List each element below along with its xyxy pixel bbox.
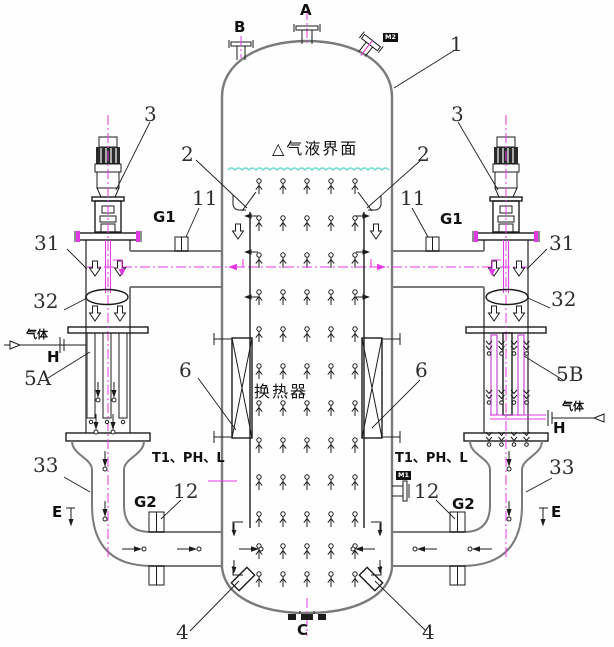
label-part-2-left: 2 [181,144,194,164]
label-nozzle-b: B [234,20,245,35]
label-part-4-left: 4 [176,622,189,642]
label-part-31-left: 31 [34,233,59,253]
label-part-1: 1 [450,34,463,54]
reactor-engineering-drawing: 1 2 2 3 3 4 4 5A 5B 6 6 11 11 12 12 31 3… [0,0,614,647]
label-nozzle-g1-left: G1 [153,210,176,225]
nozzle-m1 [392,481,409,501]
label-nozzle-g2-right: G2 [452,497,475,512]
nozzle-m2 [351,32,383,63]
label-nozzle-e-left: E [52,505,62,520]
left-circulation-assembly [66,115,263,591]
label-nozzle-a: A [300,3,312,18]
label-part-12-left: 12 [173,481,198,501]
annotation-gas-right: 气体 [562,401,584,412]
label-nozzle-g1-right: G1 [440,212,463,227]
annotation-instruments-right: T1、PH、L [395,452,468,465]
label-part-3-left: 3 [144,104,157,124]
label-part-33-right: 33 [549,457,574,477]
section-mark-e-left [66,508,75,527]
label-nozzle-m2: M2 [383,33,398,42]
label-part-2-right: 2 [417,144,430,164]
label-part-6-right: 6 [415,360,428,380]
annotation-instruments-left: T1、PH、L [152,452,225,465]
gas-liquid-interface-line [228,168,389,170]
label-part-6-left: 6 [179,360,192,380]
label-nozzle-e-right: E [551,505,561,520]
label-nozzle-h-right: H [553,421,566,436]
label-part-12-right: 12 [414,481,439,501]
label-part-11-left: 11 [192,188,217,208]
section-mark-e-right [539,508,548,527]
label-part-3-right: 3 [451,104,464,124]
label-nozzle-h-left: H [47,350,60,365]
label-nozzle-c: C [297,623,308,638]
label-nozzle-m1: M1 [396,471,411,480]
annotation-gas-left: 气体 [26,329,48,340]
label-part-4-right: 4 [422,622,435,642]
nozzle-b [229,36,253,60]
label-part-31-right: 31 [549,233,574,253]
label-part-11-right: 11 [400,188,425,208]
annotation-gas-liquid-interface: △气液界面 [272,141,358,157]
annotation-heat-exchanger: 换热器 [254,384,308,400]
label-part-32-left: 32 [33,291,58,311]
label-part-5a: 5A [24,368,51,388]
reactor-diagram-linework [0,0,614,647]
label-nozzle-g2-left: G2 [134,495,157,510]
label-part-5b: 5B [556,364,583,384]
top-nozzles [229,24,383,63]
label-part-33-left: 33 [33,455,58,475]
label-part-32-right: 32 [551,289,576,309]
